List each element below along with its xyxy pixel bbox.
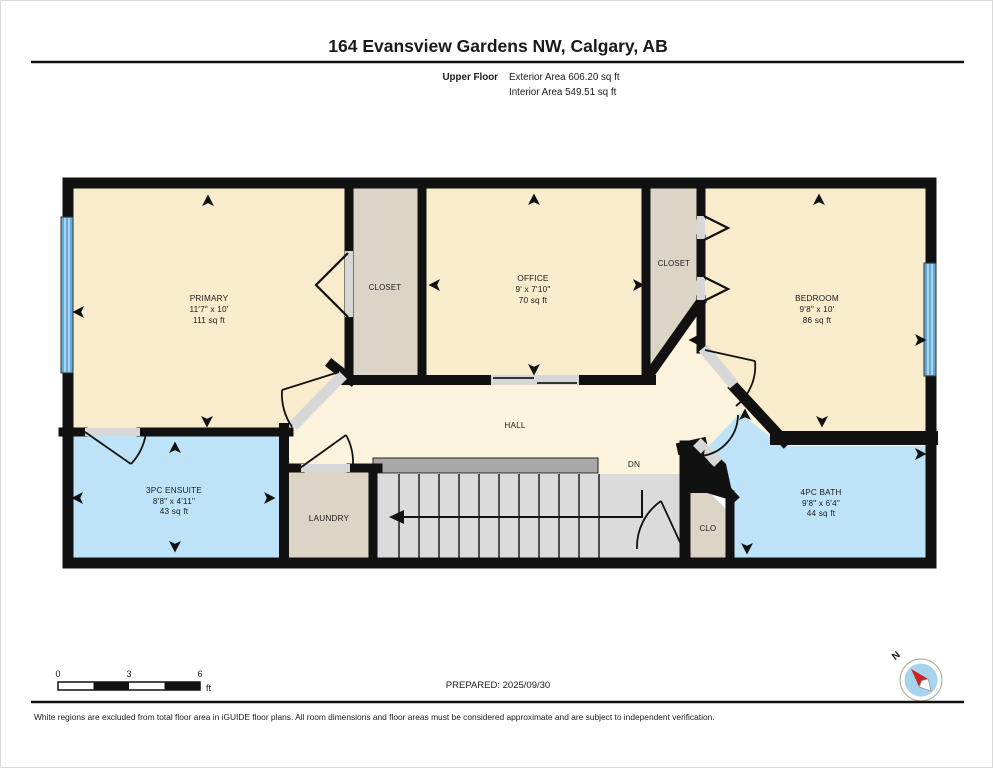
bath-name: 4PC BATH <box>800 488 841 497</box>
scale-unit: ft <box>206 683 212 693</box>
floor-label: Upper Floor <box>442 72 498 83</box>
clo-name: CLO <box>700 524 717 533</box>
scale-0: 0 <box>55 669 60 679</box>
office-area: 70 sq ft <box>519 296 548 305</box>
compass-n-label: N <box>890 650 903 663</box>
scale-3: 3 <box>126 669 131 679</box>
bedroom-area: 86 sq ft <box>803 316 832 325</box>
closet-left-name: CLOSET <box>369 283 401 292</box>
interior-area: Interior Area 549.51 sq ft <box>509 87 617 98</box>
office-name: OFFICE <box>517 274 549 283</box>
primary-dims: 11'7" x 10' <box>189 305 228 314</box>
bath-area: 44 sq ft <box>807 509 836 518</box>
closet-left-fill <box>349 183 422 380</box>
exterior-area: Exterior Area 606.20 sq ft <box>509 72 620 83</box>
hall-name: HALL <box>504 421 526 430</box>
laundry-name: LAUNDRY <box>309 514 350 523</box>
ensuite-name: 3PC ENSUITE <box>146 486 202 495</box>
disclaimer-text: White regions are excluded from total fl… <box>34 712 715 722</box>
stairs-dn-label: DN <box>628 460 640 469</box>
floor-plan-page: 164 Evansview Gardens NW, Calgary, AB Up… <box>0 0 993 768</box>
ensuite-area: 43 sq ft <box>160 507 189 516</box>
window-right <box>924 263 936 376</box>
bath-dims: 9'8" x 6'4" <box>802 499 840 508</box>
bedroom-name: BEDROOM <box>795 294 839 303</box>
primary-name: PRIMARY <box>190 294 229 303</box>
bedroom-dims: 9'8" x 10' <box>800 305 835 314</box>
prepared-date: PREPARED: 2025/09/30 <box>446 680 550 691</box>
page-title: 164 Evansview Gardens NW, Calgary, AB <box>328 36 667 56</box>
ensuite-dims: 8'8" x 4'11" <box>153 497 195 506</box>
scale-bar: 0 3 6 ft <box>55 669 211 693</box>
compass: N <box>890 650 942 701</box>
floor-plan-canvas: 164 Evansview Gardens NW, Calgary, AB Up… <box>1 1 993 768</box>
closet-right-name: CLOSET <box>658 259 690 268</box>
stairs-handrail-bar <box>373 458 598 473</box>
office-dims: 9' x 7'10" <box>516 285 551 294</box>
window-left <box>61 217 73 373</box>
primary-area: 111 sq ft <box>193 316 226 325</box>
scale-6: 6 <box>197 669 202 679</box>
